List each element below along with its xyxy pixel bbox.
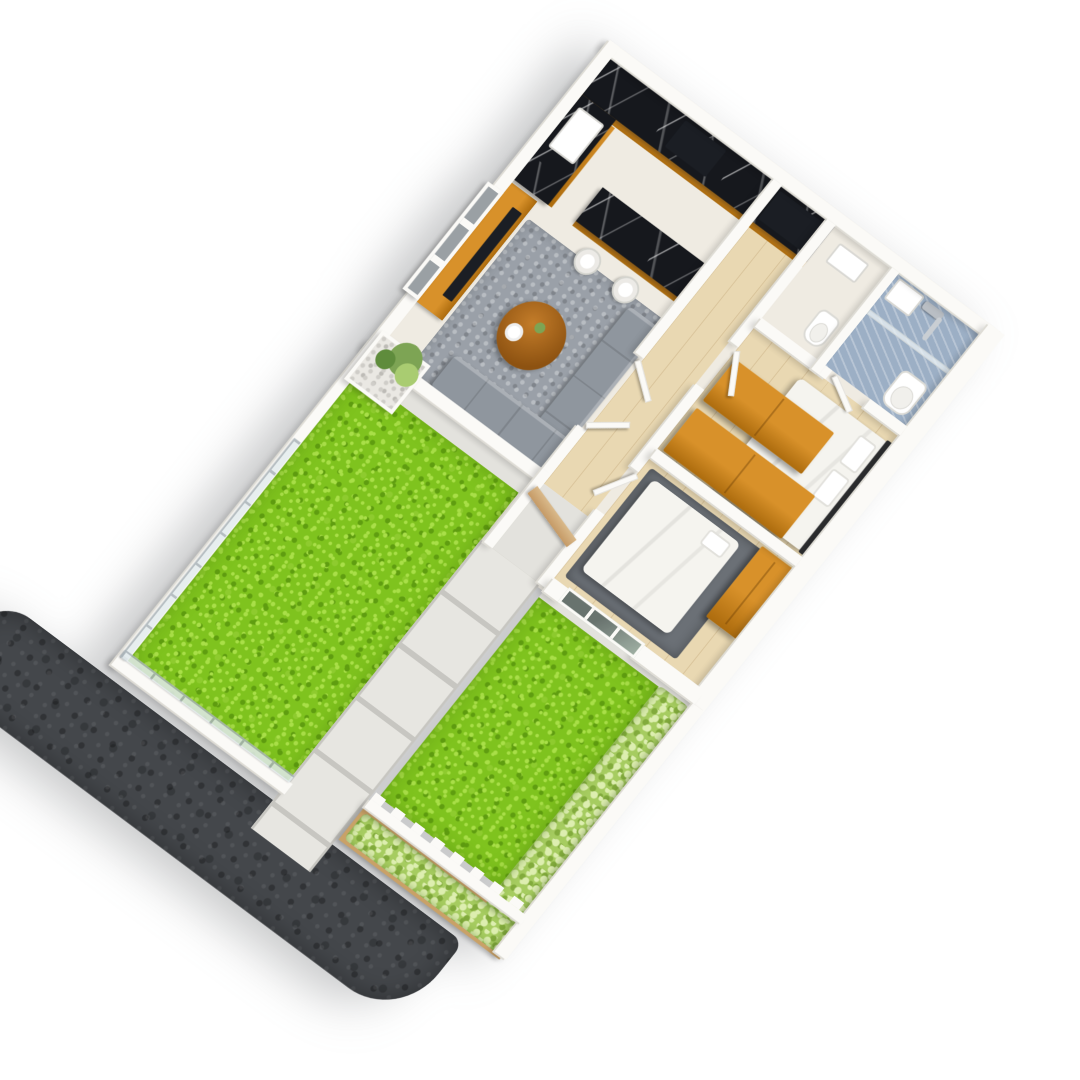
floor-plan-scene — [111, 40, 1005, 960]
living-door-leaf-2 — [586, 422, 630, 429]
render-canvas — [0, 0, 1080, 1080]
